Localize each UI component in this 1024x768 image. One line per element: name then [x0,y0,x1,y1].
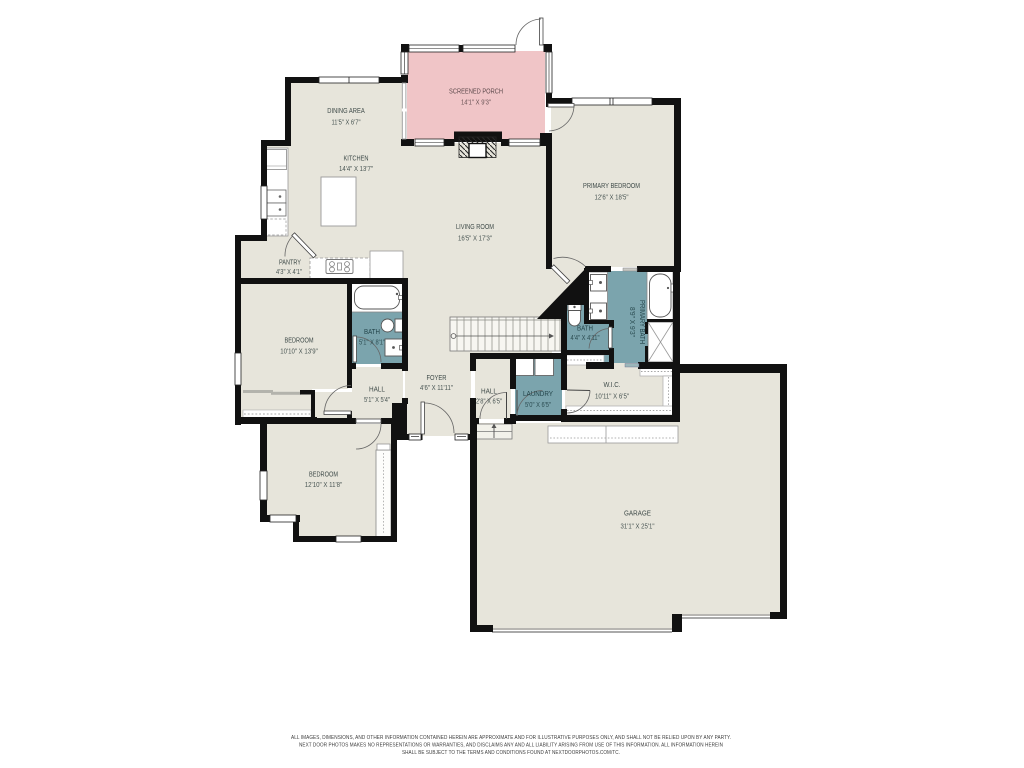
svg-text:KITCHEN: KITCHEN [344,154,369,163]
svg-text:14'1" X 9'3": 14'1" X 9'3" [461,100,491,107]
svg-text:4'4" X 4'11": 4'4" X 4'11" [571,335,600,342]
svg-text:16'5" X 17'3": 16'5" X 17'3" [458,236,492,243]
svg-text:BEDROOM: BEDROOM [285,336,314,345]
svg-text:BATH: BATH [364,327,380,336]
svg-text:10'10" X 13'9": 10'10" X 13'9" [280,348,318,355]
svg-text:ALL IMAGES, DIMENSIONS, AND OT: ALL IMAGES, DIMENSIONS, AND OTHER INFORM… [291,735,731,741]
svg-text:12'10" X 11'8": 12'10" X 11'8" [305,482,343,489]
svg-text:31'1" X 25'1": 31'1" X 25'1" [621,524,655,531]
svg-text:PRIMARY BEDROOM: PRIMARY BEDROOM [583,181,640,190]
svg-text:14'4" X 13'7": 14'4" X 13'7" [339,166,373,173]
svg-text:HALL: HALL [369,385,385,394]
svg-text:PANTRY: PANTRY [279,258,301,267]
svg-text:4'6" X 11'11": 4'6" X 11'11" [420,385,453,392]
svg-text:11'5" X 6'7": 11'5" X 6'7" [332,120,361,127]
svg-text:W.I.C.: W.I.C. [604,380,621,389]
svg-text:PRIMARY BATH: PRIMARY BATH [638,300,647,344]
svg-text:GARAGE: GARAGE [624,509,651,518]
svg-text:5'1" X 5'4": 5'1" X 5'4" [364,397,390,404]
svg-text:LIVING ROOM: LIVING ROOM [456,222,494,231]
svg-text:12'6" X 18'5": 12'6" X 18'5" [595,195,629,202]
svg-text:2'8" X 6'5": 2'8" X 6'5" [476,399,502,406]
svg-text:DINING AREA: DINING AREA [327,106,365,115]
svg-text:LAUNDRY: LAUNDRY [523,389,553,398]
svg-text:SHALL BE SUBJECT TO THE TERMS: SHALL BE SUBJECT TO THE TERMS AND CONDIT… [402,750,620,756]
svg-text:5'1" X 8'1": 5'1" X 8'1" [359,340,385,347]
svg-text:NEXT DOOR PHOTOS MAKES NO REPR: NEXT DOOR PHOTOS MAKES NO REPRESENTATION… [299,743,723,749]
svg-text:HALL: HALL [481,387,497,396]
svg-text:4'3" X 4'1": 4'3" X 4'1" [276,269,302,276]
svg-text:FOYER: FOYER [427,373,447,382]
svg-text:SCREENED PORCH: SCREENED PORCH [449,87,503,96]
svg-text:BATH: BATH [577,324,593,333]
svg-text:BEDROOM: BEDROOM [309,470,338,479]
svg-text:10'11" X 6'5": 10'11" X 6'5" [595,394,629,401]
svg-text:5'0" X 6'5": 5'0" X 6'5" [525,402,551,409]
svg-text:8'9" X 9'3": 8'9" X 9'3" [628,307,635,337]
